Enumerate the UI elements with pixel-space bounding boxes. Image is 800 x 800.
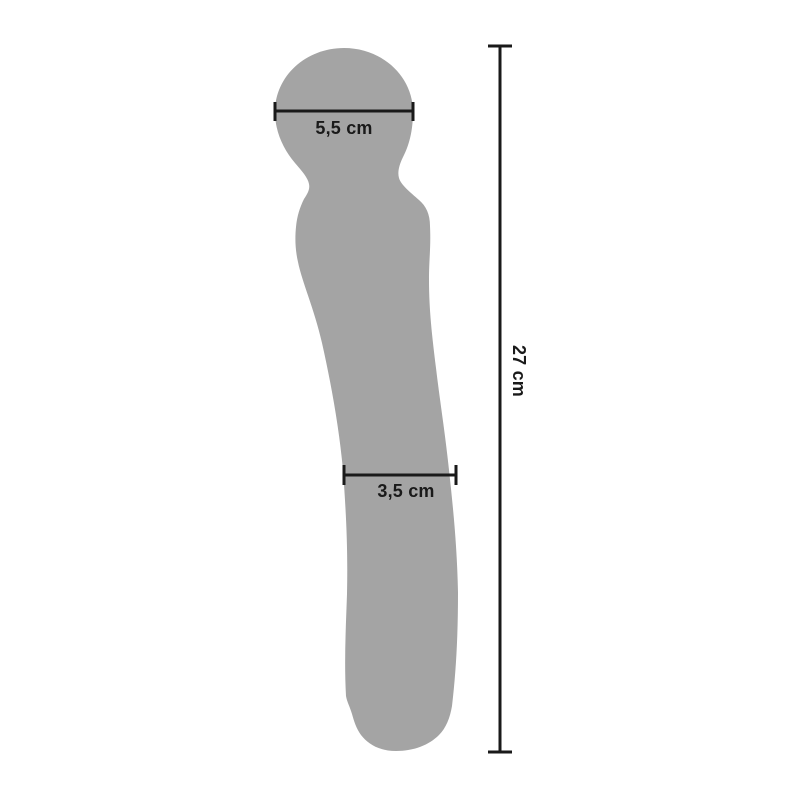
- total-length-dimension: 27 cm: [488, 46, 529, 752]
- shaft-width-label: 3,5 cm: [377, 481, 434, 501]
- total-length-label: 27 cm: [509, 345, 529, 397]
- dimensions-diagram: 5,5 cm 3,5 cm 27 cm: [0, 0, 800, 800]
- head-width-label: 5,5 cm: [315, 118, 372, 138]
- diagram-canvas: 5,5 cm 3,5 cm 27 cm: [0, 0, 800, 800]
- product-silhouette: [275, 48, 458, 751]
